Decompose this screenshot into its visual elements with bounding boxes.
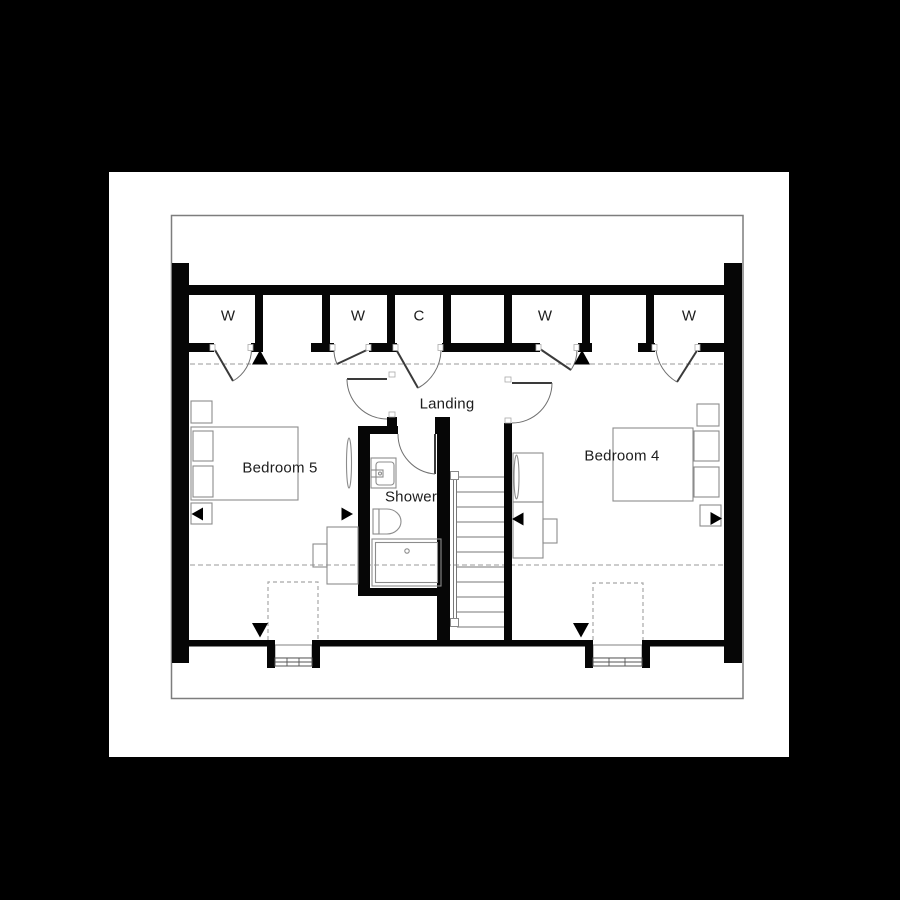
bay-cheek	[312, 640, 320, 668]
bay-cheek	[585, 640, 593, 668]
wall-exterior-right	[724, 263, 742, 663]
room-label-landing: Landing	[420, 397, 475, 412]
window-right	[593, 658, 642, 666]
wall-bottom	[650, 640, 730, 647]
shower-wall-bottom	[358, 588, 450, 596]
window-left	[275, 658, 312, 666]
closet-label-c: C	[413, 309, 424, 324]
shower-wall-right	[437, 426, 450, 640]
room-label-bedroom5: Bedroom 5	[242, 461, 317, 476]
closet-front-wall	[442, 343, 540, 352]
newel-post	[451, 472, 459, 480]
closet-front-wall	[698, 343, 724, 352]
window-bay-right	[593, 645, 642, 658]
toilet	[373, 509, 401, 534]
shower-wall-left	[358, 426, 370, 590]
closet-front-wall	[578, 343, 592, 352]
room-label-shower: Shower	[385, 490, 437, 505]
floorplan-screenshot: W W C W W Landing Shower Bedroom 5 Bedro…	[0, 0, 900, 900]
closet-label-w1: W	[221, 309, 235, 324]
room-label-bedroom4: Bedroom 4	[584, 449, 659, 464]
closet-label-w4: W	[682, 309, 696, 324]
wall-bottom	[320, 640, 585, 647]
bay-cheek	[642, 640, 650, 668]
wall-exterior-left	[172, 263, 189, 663]
wall-bottom	[180, 640, 267, 647]
bay-cheek	[267, 640, 275, 668]
window-bay-left	[275, 645, 312, 658]
newel-post	[451, 619, 459, 627]
floorplan-drawing	[0, 0, 900, 900]
closet-label-w3: W	[538, 309, 552, 324]
wall-top	[185, 285, 728, 295]
stair-wall	[504, 423, 512, 640]
closet-label-w2: W	[351, 309, 365, 324]
